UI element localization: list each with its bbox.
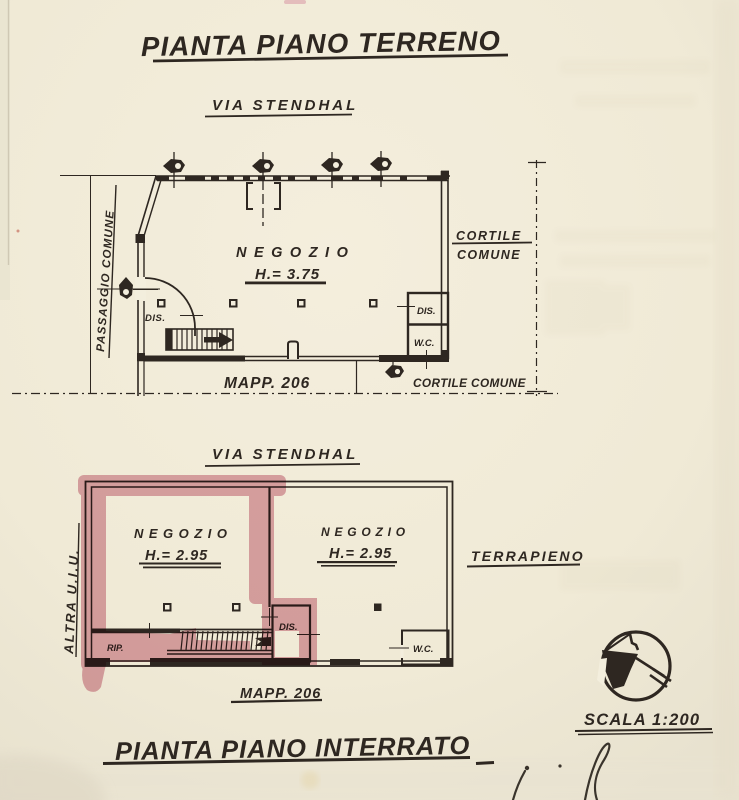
svg-text:MAPP. 206: MAPP. 206 [224,375,310,392]
svg-text:VIA STENDHAL: VIA STENDHAL [212,446,358,463]
svg-text:H.= 3.75: H.= 3.75 [255,266,320,283]
svg-text:DIS.: DIS. [145,313,165,324]
svg-text:H.= 2.95: H.= 2.95 [145,548,208,564]
svg-text:H.= 2.95: H.= 2.95 [329,546,392,562]
svg-text:VIA STENDHAL: VIA STENDHAL [212,97,358,114]
svg-text:W.C.: W.C. [413,644,433,655]
svg-text:CORTILE COMUNE: CORTILE COMUNE [413,376,527,390]
svg-text:W.C.: W.C. [414,338,434,349]
svg-text:SCALA 1:200: SCALA 1:200 [584,711,700,729]
svg-text:NEGOZIO: NEGOZIO [134,526,232,541]
svg-text:NEGOZIO: NEGOZIO [321,525,410,539]
svg-text:CORTILE: CORTILE [456,229,522,243]
svg-text:DIS.: DIS. [417,306,435,317]
svg-text:COMUNE: COMUNE [457,248,521,262]
svg-text:NEGOZIO: NEGOZIO [236,245,355,261]
